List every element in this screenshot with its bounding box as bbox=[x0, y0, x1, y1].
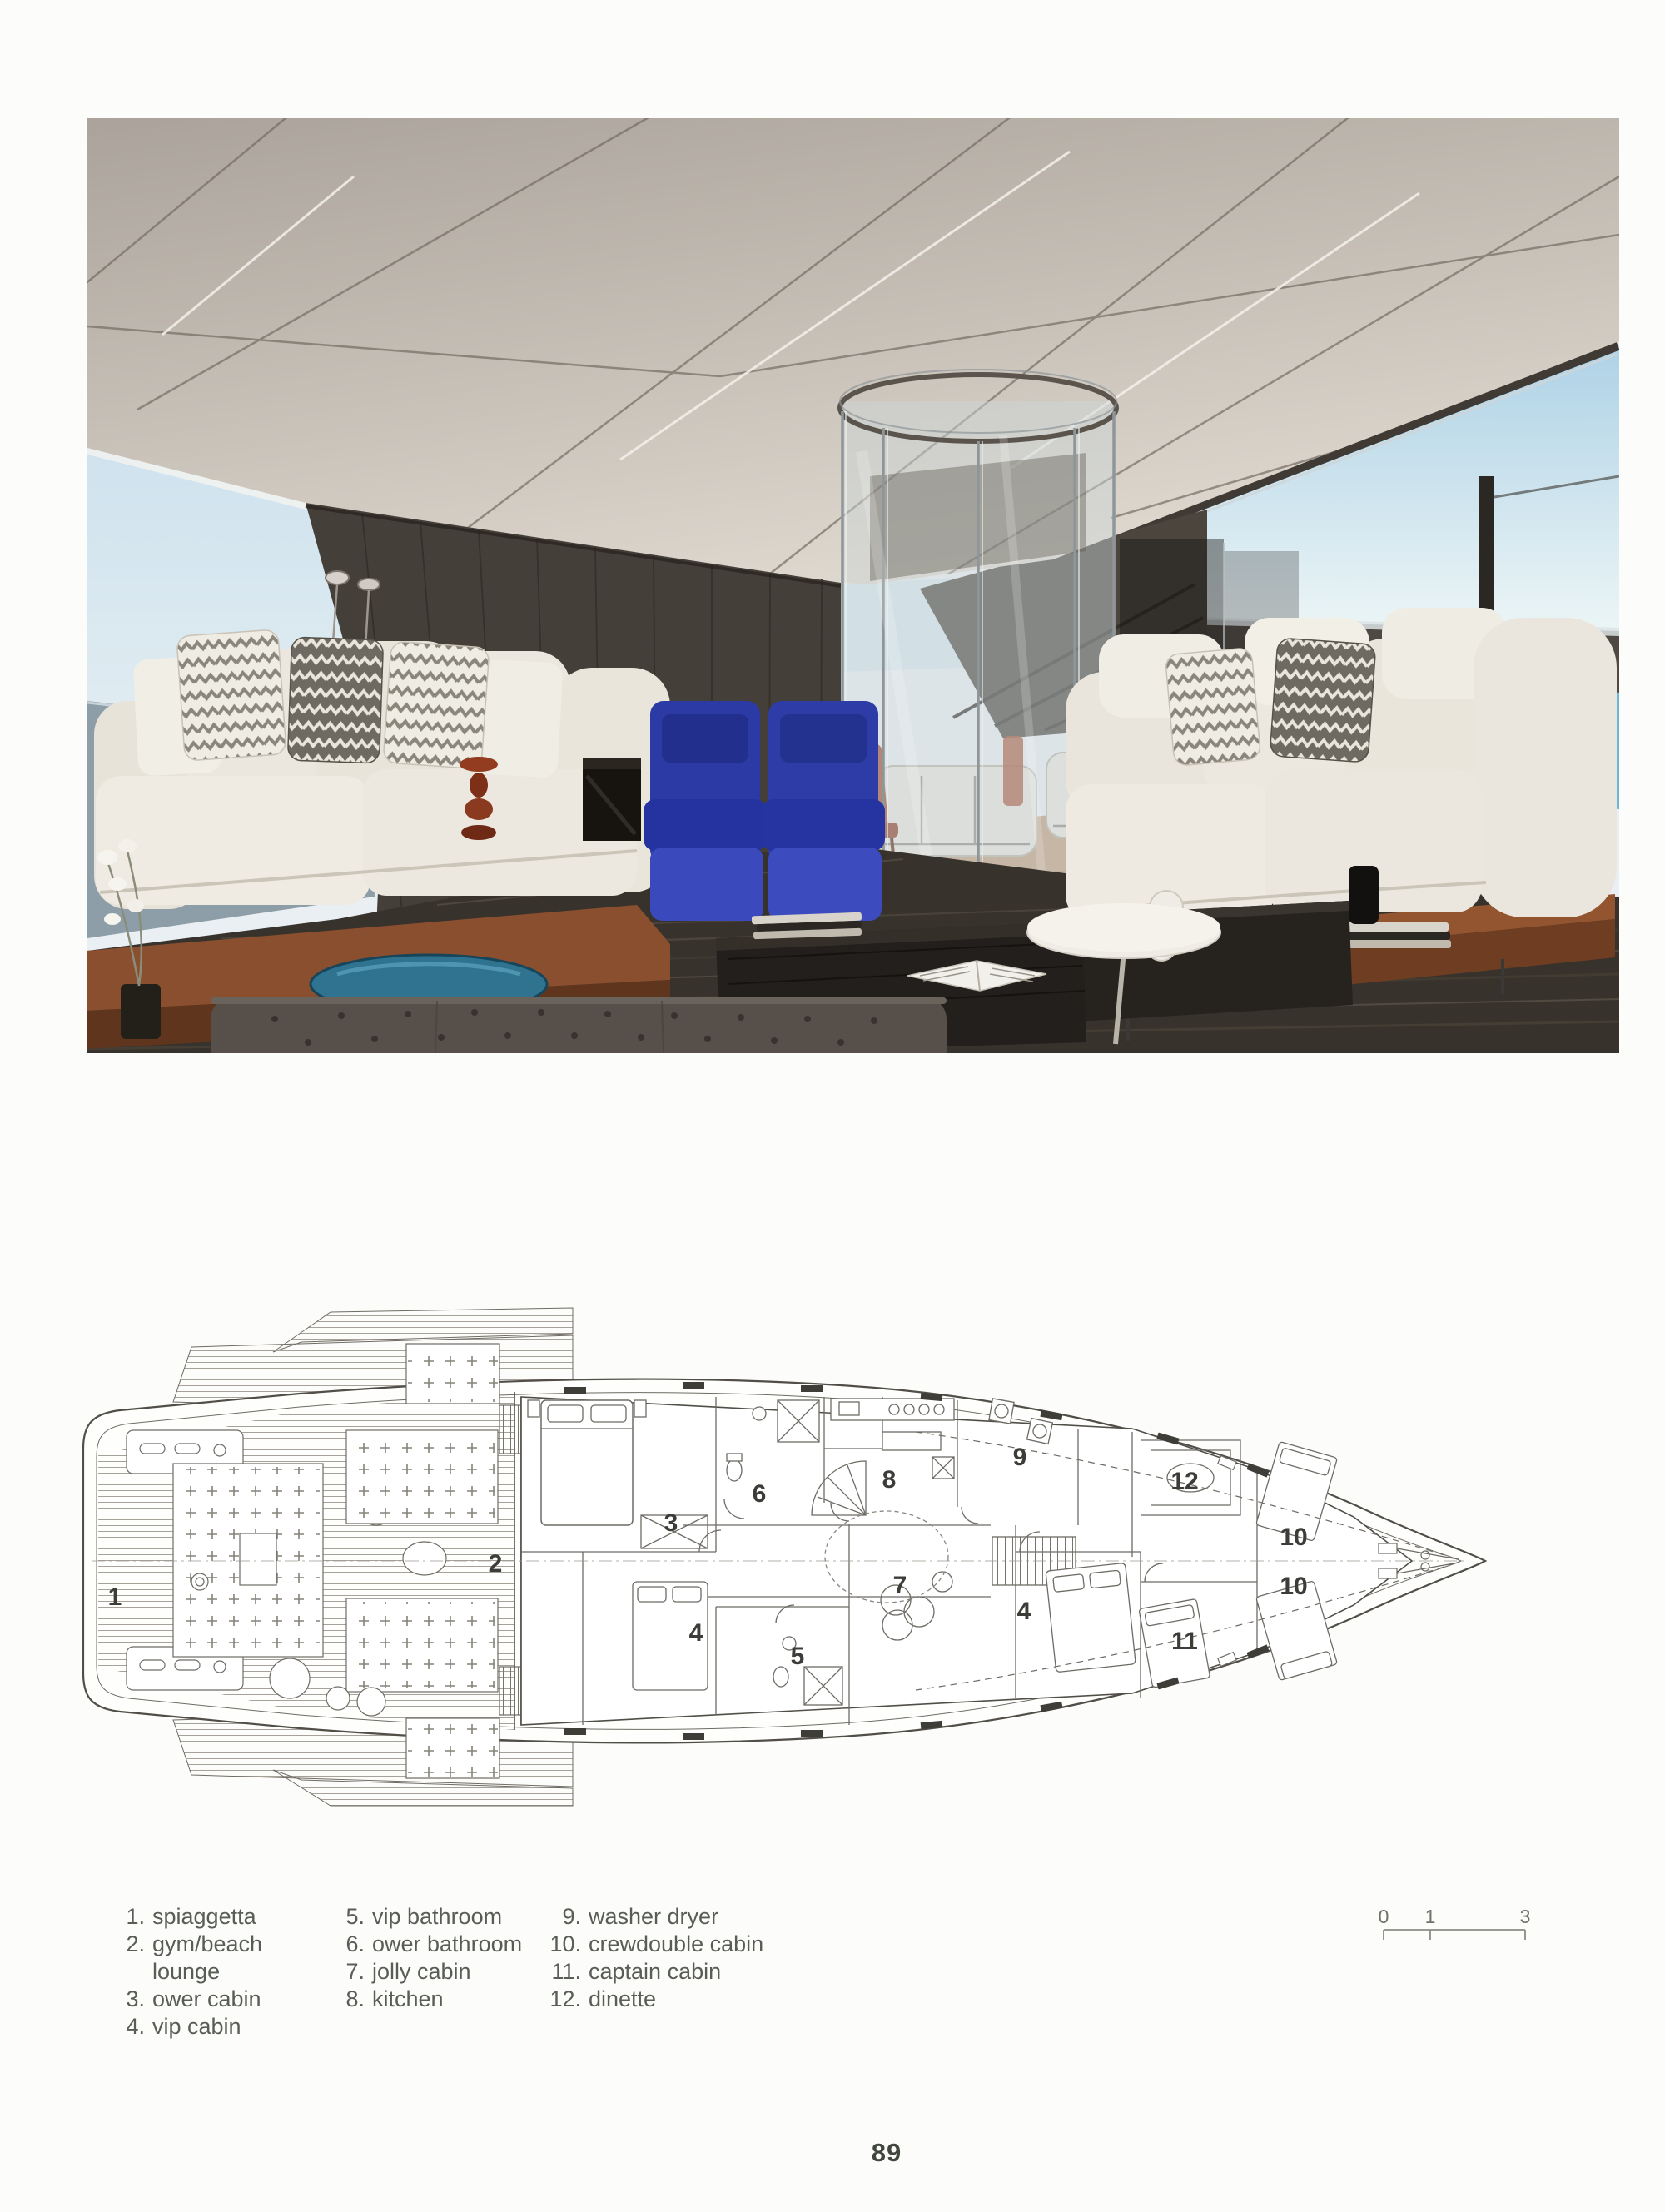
legend-number: 3. bbox=[107, 1986, 145, 2013]
blue-armchair bbox=[762, 701, 885, 921]
zigzag-pillow bbox=[287, 637, 383, 763]
legend-label: vip cabin bbox=[152, 2013, 331, 2041]
legend-label: gym/beach lounge bbox=[152, 1931, 331, 1986]
legend-number: 7. bbox=[326, 1958, 365, 1986]
scale-tick-1: 1 bbox=[1425, 1906, 1436, 1927]
legend-label: dinette bbox=[589, 1986, 818, 2013]
legend-item: 10. crewdouble cabin bbox=[543, 1931, 818, 1958]
zigzag-pillow bbox=[1270, 638, 1376, 763]
chevron-pillow bbox=[176, 629, 286, 761]
legend-label: ower cabin bbox=[152, 1986, 331, 2013]
room-label-11: 11 bbox=[1171, 1628, 1198, 1655]
room-label-8: 8 bbox=[882, 1466, 897, 1494]
tufted-ottoman bbox=[211, 997, 947, 1053]
legend-label: washer dryer bbox=[589, 1903, 818, 1931]
room-label-4b: 4 bbox=[1017, 1598, 1031, 1625]
legend-column-2: 5. vip bathroom 6. ower bathroom 7. joll… bbox=[326, 1903, 543, 2013]
legend-item: 4. vip cabin bbox=[107, 2013, 331, 2041]
legend-number: 9. bbox=[543, 1903, 581, 1931]
legend-item: 12. dinette bbox=[543, 1986, 818, 2013]
room-label-7: 7 bbox=[893, 1572, 907, 1599]
room-label-10b: 10 bbox=[1280, 1573, 1307, 1600]
legend-item: 7. jolly cabin bbox=[326, 1958, 543, 1986]
legend-label: vip bathroom bbox=[372, 1903, 543, 1931]
scale-tick-0: 0 bbox=[1379, 1906, 1389, 1927]
room-label-6: 6 bbox=[753, 1480, 767, 1508]
legend-column-3: 9. washer dryer 10. crewdouble cabin 11.… bbox=[543, 1903, 818, 2013]
deck-plan-svg: 1 2 3 4 4 5 6 7 8 9 10 10 11 12 bbox=[50, 1307, 1540, 1807]
legend-number: 4. bbox=[107, 2013, 145, 2041]
black-cube-table bbox=[583, 758, 641, 841]
room-label-10a: 10 bbox=[1280, 1524, 1307, 1551]
legend-number: 2. bbox=[107, 1931, 145, 1986]
legend-label: kitchen bbox=[372, 1986, 543, 2013]
scale-tick-3: 3 bbox=[1520, 1906, 1531, 1927]
legend-number: 1. bbox=[107, 1903, 145, 1931]
legend-item: 8. kitchen bbox=[326, 1986, 543, 2013]
legend-label: spiaggetta bbox=[152, 1903, 331, 1931]
legend-label: crewdouble cabin bbox=[589, 1931, 818, 1958]
legend-item: 11. captain cabin bbox=[543, 1958, 818, 1986]
page-number: 89 bbox=[841, 2138, 932, 2168]
saloon-photo-svg bbox=[87, 118, 1619, 1053]
book-page: 1 2 3 4 4 5 6 7 8 9 10 10 11 12 1. spiag… bbox=[0, 0, 1665, 2212]
legend-number: 11. bbox=[543, 1958, 581, 1986]
blue-armchair bbox=[644, 701, 767, 921]
room-label-5: 5 bbox=[791, 1643, 805, 1670]
legend-label: captain cabin bbox=[589, 1958, 818, 1986]
legend-item: 2. gym/beach lounge bbox=[107, 1931, 331, 1986]
saloon-photo bbox=[87, 118, 1619, 1053]
legend-number: 12. bbox=[543, 1986, 581, 2013]
legend-item: 9. washer dryer bbox=[543, 1903, 818, 1931]
legend-number: 10. bbox=[543, 1931, 581, 1958]
black-bottle bbox=[1349, 866, 1379, 924]
legend-item: 3. ower cabin bbox=[107, 1986, 331, 2013]
legend-item: 6. ower bathroom bbox=[326, 1931, 543, 1958]
chevron-pillow bbox=[383, 641, 490, 769]
legend-item: 5. vip bathroom bbox=[326, 1903, 543, 1931]
room-label-1: 1 bbox=[108, 1583, 122, 1611]
room-label-4a: 4 bbox=[689, 1619, 703, 1647]
scale-bar: 0 1 3 bbox=[1364, 1903, 1538, 1945]
chevron-pillow bbox=[1165, 648, 1260, 767]
scale-bar-svg: 0 1 3 bbox=[1364, 1903, 1538, 1945]
legend-number: 6. bbox=[326, 1931, 365, 1958]
legend-item: 1. spiaggetta bbox=[107, 1903, 331, 1931]
legend-number: 8. bbox=[326, 1986, 365, 2013]
room-label-9: 9 bbox=[1013, 1444, 1027, 1471]
room-label-2: 2 bbox=[489, 1550, 503, 1578]
room-label-12: 12 bbox=[1170, 1468, 1198, 1495]
legend-label: ower bathroom bbox=[372, 1931, 543, 1958]
legend-label: jolly cabin bbox=[372, 1958, 543, 1986]
legend-number: 5. bbox=[326, 1903, 365, 1931]
room-label-3: 3 bbox=[664, 1509, 678, 1537]
legend-column-1: 1. spiaggetta 2. gym/beach lounge 3. owe… bbox=[107, 1903, 331, 2041]
deck-plan: 1 2 3 4 4 5 6 7 8 9 10 10 11 12 bbox=[50, 1307, 1540, 1807]
